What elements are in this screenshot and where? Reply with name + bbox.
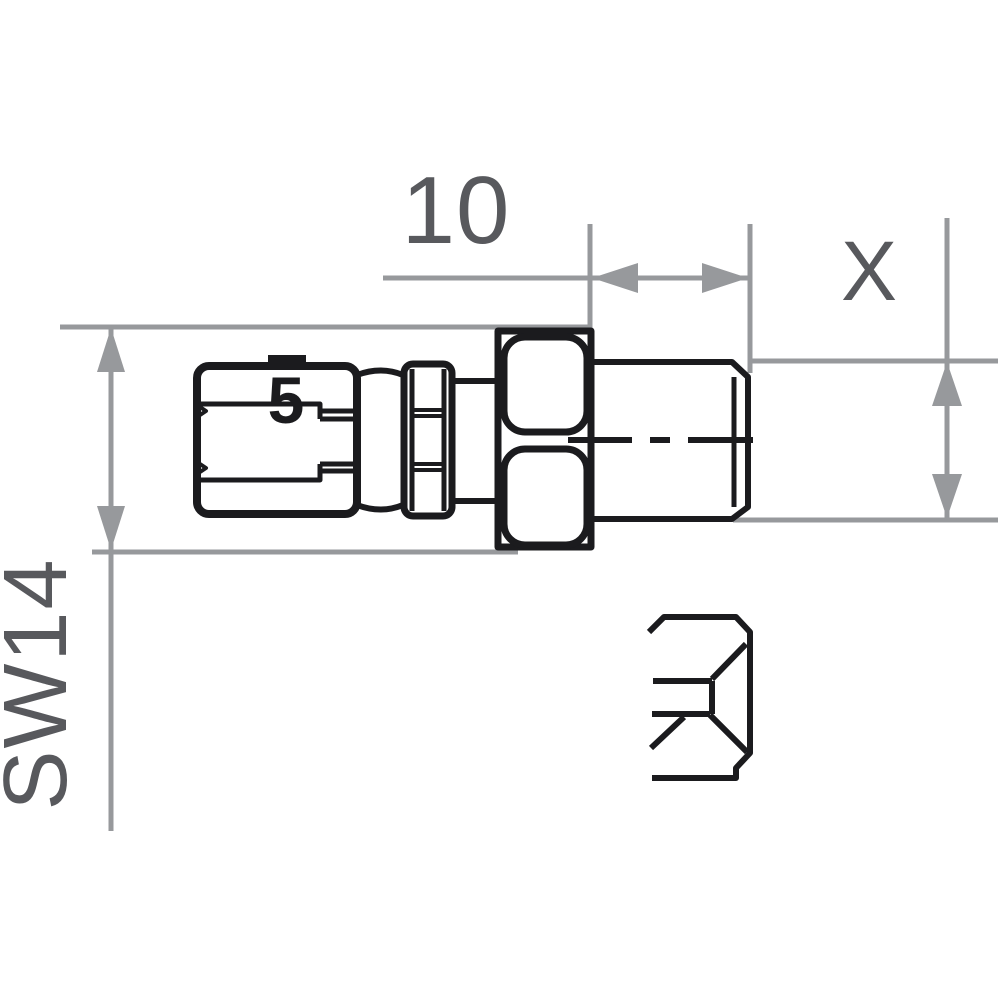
end-view-detail: [649, 617, 750, 778]
hex-face-upper: [504, 337, 587, 432]
arrow-thread-down-icon: [932, 474, 962, 518]
hex-face-lower: [504, 449, 587, 545]
crimp-ferrule: [404, 364, 452, 516]
technical-drawing-canvas: 10 X SW14 5: [0, 0, 1000, 1000]
arrow-thread-up-icon: [932, 362, 962, 406]
end-view-seat-cone: [651, 644, 747, 752]
ferrule-inner-verticals: [412, 369, 444, 511]
dim-label-thread-x: X: [841, 224, 897, 318]
socket-inner-lower: [201, 464, 356, 480]
neck-lines: [452, 381, 498, 501]
crimp-bead: [357, 371, 403, 510]
dim-label-wrench-sw14: SW14: [0, 557, 86, 810]
dim-label-width-10: 10: [402, 157, 511, 264]
arrow-hex-down-icon: [97, 506, 125, 550]
end-view-outline: [649, 617, 750, 778]
stamp-label-5: 5: [268, 363, 305, 437]
arrow-width-left-icon: [592, 263, 638, 293]
arrow-hex-up-icon: [97, 328, 125, 372]
arrow-width-right-icon: [702, 263, 748, 293]
drawing-page: 10 X SW14 5: [0, 0, 1000, 1000]
ferrule-grooves: [413, 410, 443, 470]
